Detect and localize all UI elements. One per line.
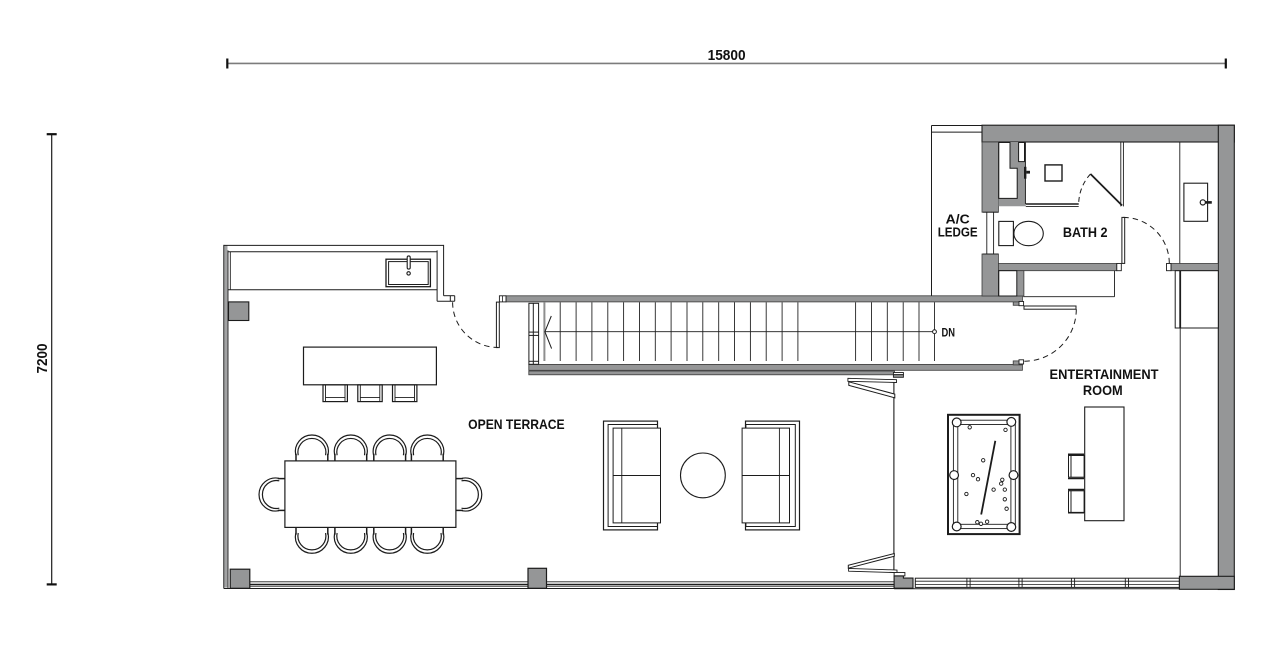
svg-text:LEDGE: LEDGE — [938, 224, 978, 239]
svg-text:BATH 2: BATH 2 — [1063, 225, 1108, 240]
svg-text:OPEN TERRACE: OPEN TERRACE — [468, 417, 565, 432]
svg-text:DN: DN — [942, 327, 956, 340]
svg-text:7200: 7200 — [35, 344, 51, 374]
svg-text:ENTERTAINMENT: ENTERTAINMENT — [1050, 367, 1160, 382]
svg-text:15800: 15800 — [708, 48, 746, 64]
svg-text:ROOM: ROOM — [1083, 383, 1123, 398]
